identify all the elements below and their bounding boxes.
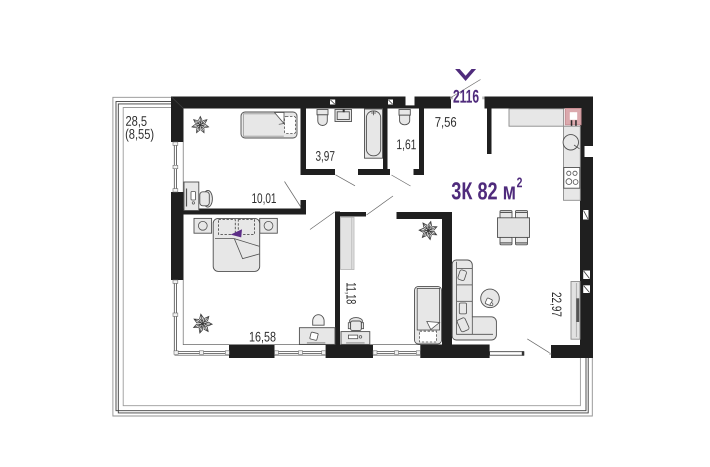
- svg-text:7,56: 7,56: [435, 114, 457, 130]
- svg-text:2: 2: [517, 174, 523, 190]
- svg-text:3,97: 3,97: [315, 148, 335, 164]
- svg-text:1,61: 1,61: [396, 136, 416, 152]
- svg-text:10,01: 10,01: [251, 190, 276, 206]
- svg-text:16,58: 16,58: [249, 328, 276, 344]
- svg-text:22,97: 22,97: [549, 292, 565, 317]
- svg-text:11,18: 11,18: [344, 282, 360, 304]
- svg-text:2116: 2116: [453, 86, 479, 107]
- svg-text:(8,55): (8,55): [125, 126, 154, 142]
- svg-text:3К 82 м: 3К 82 м: [451, 178, 516, 205]
